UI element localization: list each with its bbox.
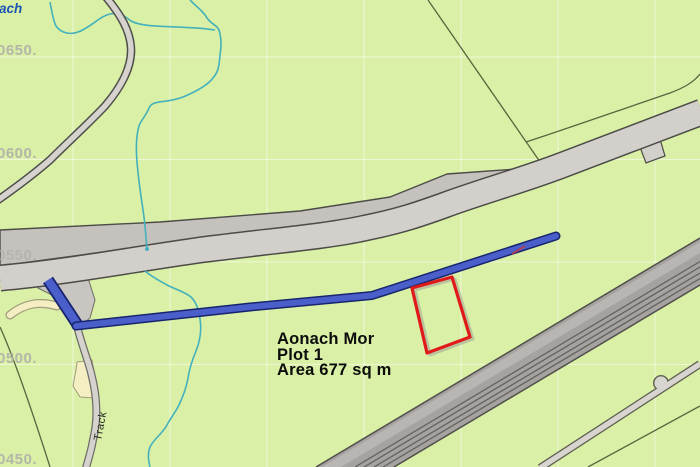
grid-label-0550: 0550. <box>0 247 37 264</box>
stream-sink-dot <box>145 247 149 251</box>
map-container[interactable]: ach 0650. 0600. 0550. 0500. 0450. Track … <box>0 0 700 467</box>
grid-label-0500: 0500. <box>0 350 37 367</box>
grid-label-0650: 0650. <box>0 42 37 59</box>
grid-label-0450: 0450. <box>0 451 37 467</box>
stream-name-label: ach <box>0 1 22 16</box>
grid-label-0600: 0600. <box>0 145 37 162</box>
plot-annotation: Aonach Mor Plot 1 Area 677 sq m <box>277 332 392 379</box>
plot-annotation-area: Area 677 sq m <box>277 363 392 379</box>
map-canvas <box>0 0 700 467</box>
